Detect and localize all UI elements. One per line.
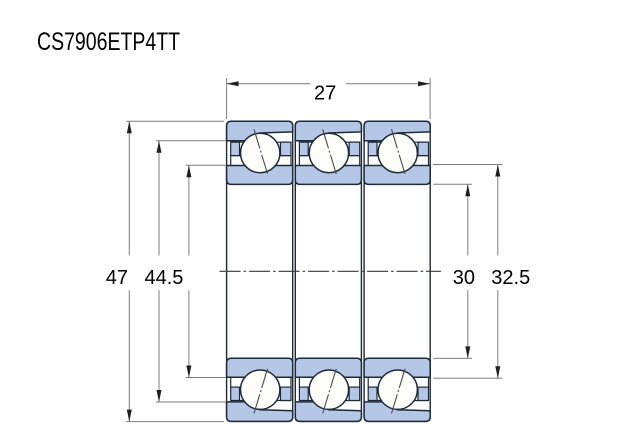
svg-text:44.5: 44.5 bbox=[145, 267, 184, 289]
svg-text:27: 27 bbox=[314, 83, 336, 105]
svg-text:30: 30 bbox=[453, 267, 475, 289]
svg-text:32.5: 32.5 bbox=[491, 267, 530, 289]
svg-text:47: 47 bbox=[106, 267, 128, 289]
